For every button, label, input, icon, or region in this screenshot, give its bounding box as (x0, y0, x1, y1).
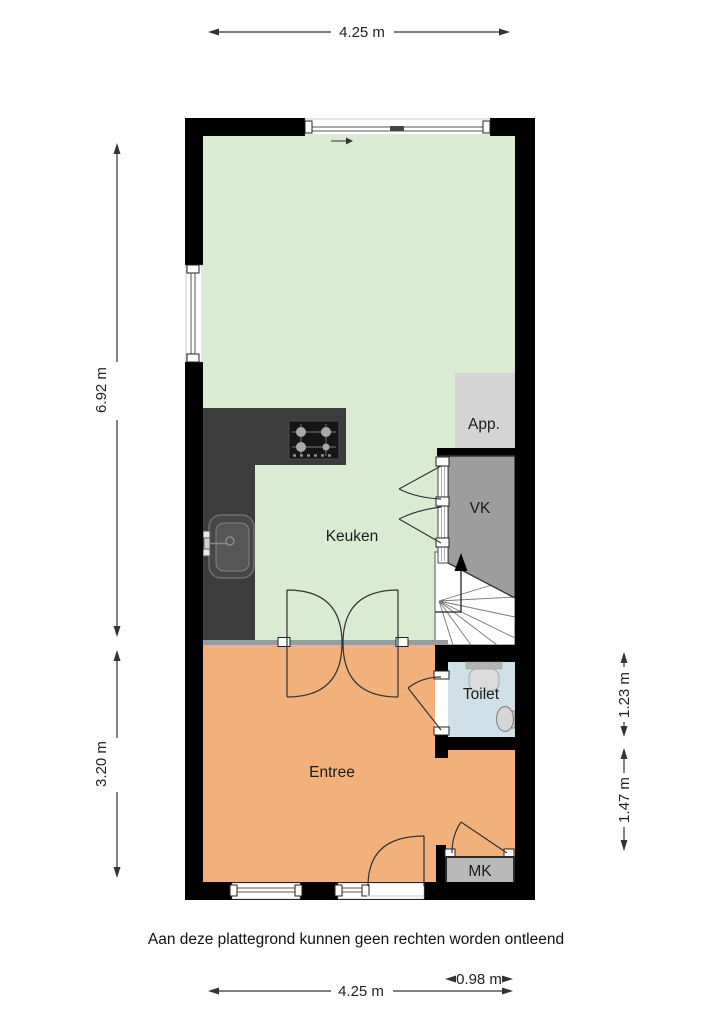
label-entree: Entree (309, 764, 355, 781)
dim-left-lower-label: 3.20 m (93, 741, 110, 787)
dim-right-upper-label: 1.23 m (616, 672, 633, 718)
toilet-top-wall (435, 645, 515, 662)
floorplan-page: 4.25 m 6.92 m 3.20 m 1.23 m 1.47 m 0.98 … (0, 0, 724, 1024)
window-sidelight-and-threshold (335, 883, 424, 899)
wall-left-upper (185, 118, 203, 265)
label-app: App. (468, 416, 500, 433)
toilet-door-opening (435, 678, 448, 727)
dim-top-label: 4.25 m (339, 24, 385, 41)
app-box (455, 373, 515, 448)
dim-right-lower-label: 1.47 m (616, 777, 633, 823)
wall-right (515, 118, 535, 900)
dimension-left-lower: 3.20 m (93, 650, 121, 878)
window-top (305, 119, 490, 135)
appliance-area (455, 373, 515, 448)
label-toilet: Toilet (463, 686, 500, 703)
dim-left-upper-label: 6.92 m (93, 367, 110, 413)
floorplan-drawing: 4.25 m 6.92 m 3.20 m 1.23 m 1.47 m 0.98 … (0, 0, 724, 1024)
dimension-bottom-right: 0.98 m (445, 971, 513, 988)
dimension-right-upper: 1.23 m (616, 652, 633, 737)
label-vk: VK (470, 500, 491, 517)
label-mk: MK (468, 863, 492, 880)
wall-left-lower (185, 362, 203, 882)
wall-above-vk (437, 448, 515, 456)
window-bottom (230, 883, 302, 899)
dim-bottom-label: 4.25 m (338, 983, 384, 1000)
divider-wall (203, 640, 448, 645)
label-keuken: Keuken (326, 528, 379, 545)
stove-icon (289, 421, 339, 459)
toilet-bottom-wall (435, 737, 515, 750)
disclaimer-text: Aan deze plattegrond kunnen geen rechten… (148, 931, 564, 948)
window-left (186, 265, 202, 362)
sink-icon (203, 515, 254, 578)
dimension-left-upper: 6.92 m (93, 143, 121, 637)
dim-bottom-right-label: 0.98 m (456, 971, 502, 988)
dimension-right-lower: 1.47 m (616, 748, 633, 851)
dimension-top-width: 4.25 m (208, 24, 510, 41)
